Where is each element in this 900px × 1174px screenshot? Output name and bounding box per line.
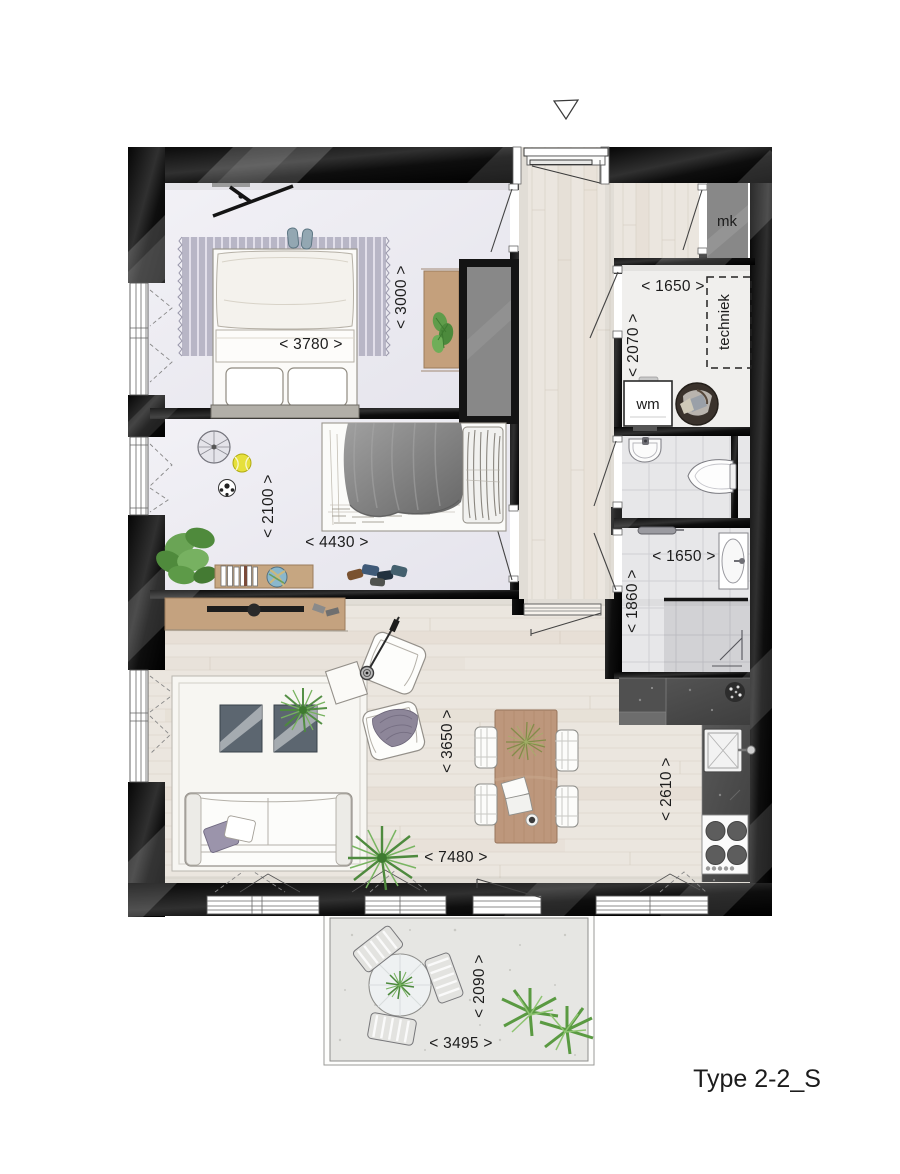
svg-text:< 2100 >: < 2100 > (260, 474, 277, 538)
svg-text:< 1860 >: < 1860 > (624, 569, 641, 633)
svg-text:< 2070 >: < 2070 > (625, 313, 642, 377)
svg-text:< 3495 >: < 3495 > (429, 1035, 493, 1052)
svg-text:< 2090 >: < 2090 > (471, 954, 488, 1018)
svg-text:mk: mk (717, 213, 737, 230)
svg-text:Type 2-2_S: Type 2-2_S (693, 1065, 821, 1093)
svg-text:wm: wm (635, 396, 659, 413)
svg-text:< 1650 >: < 1650 > (641, 278, 705, 295)
svg-text:< 1650 >: < 1650 > (652, 548, 716, 565)
svg-text:< 4430 >: < 4430 > (305, 534, 369, 551)
svg-text:< 7480 >: < 7480 > (424, 849, 488, 866)
svg-text:< 2610 >: < 2610 > (658, 757, 675, 821)
svg-text:< 3650 >: < 3650 > (439, 709, 456, 773)
svg-text:< 3000 >: < 3000 > (393, 265, 410, 329)
svg-text:< 3780 >: < 3780 > (279, 336, 343, 353)
svg-text:techniek: techniek (716, 294, 733, 350)
